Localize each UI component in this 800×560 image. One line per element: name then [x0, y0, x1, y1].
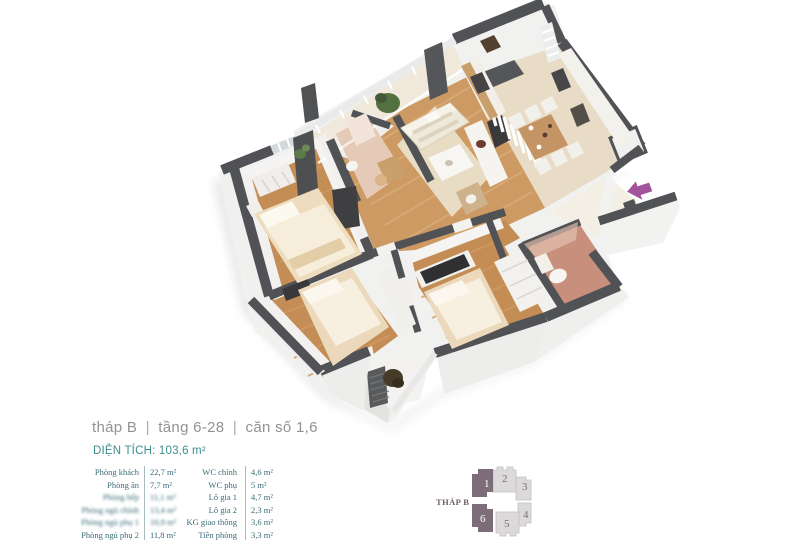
- svg-text:4: 4: [523, 509, 529, 521]
- svg-text:5: 5: [504, 518, 510, 530]
- svg-text:1: 1: [484, 478, 490, 490]
- svg-text:6: 6: [480, 513, 486, 525]
- svg-text:2: 2: [502, 473, 508, 485]
- svg-text:3: 3: [522, 481, 528, 493]
